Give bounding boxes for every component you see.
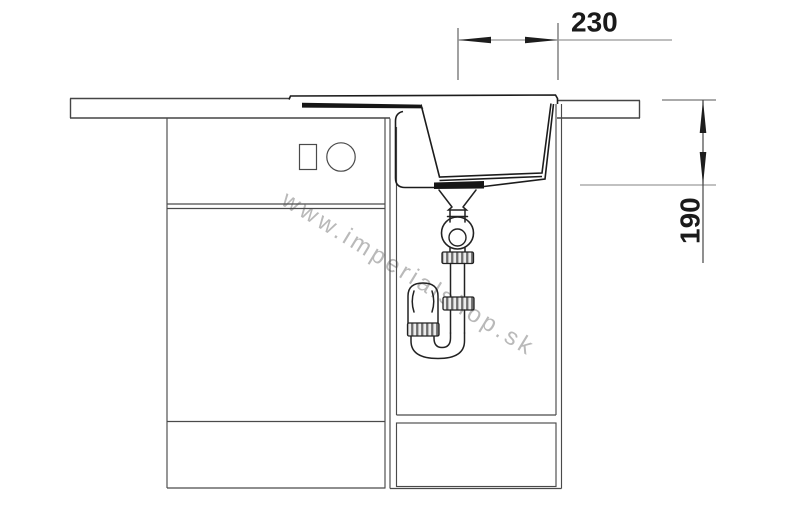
worktop-right <box>557 101 640 119</box>
sink-base-cabinet <box>390 104 562 489</box>
base-cabinet-left <box>167 119 386 489</box>
knurled-nut-middle <box>443 297 474 310</box>
dimension-depth-label: 190 <box>675 197 706 244</box>
panel-symbol-circle <box>327 143 355 171</box>
arrow-left-icon <box>458 37 491 43</box>
dimension-width-230: 230 <box>458 7 672 81</box>
dimension-depth-190: 190 <box>580 100 716 263</box>
knurled-nut-bottom <box>408 323 440 336</box>
arrow-up-icon <box>700 100 707 133</box>
panel-symbol-rect <box>300 145 317 170</box>
arrow-right-icon <box>525 37 558 43</box>
technical-drawing-canvas: www.imperialshop.sk <box>0 0 800 518</box>
sink-bowl <box>289 95 558 189</box>
knurled-nut-top <box>442 252 474 264</box>
trap-union-ball <box>442 217 474 249</box>
worktop-left <box>70 99 390 119</box>
sink-installation-diagram: www.imperialshop.sk <box>0 0 800 518</box>
drainboard-edge <box>302 103 424 109</box>
dimension-width-label: 230 <box>571 7 618 38</box>
drain-flange <box>434 181 484 189</box>
arrow-down-icon <box>700 152 707 185</box>
